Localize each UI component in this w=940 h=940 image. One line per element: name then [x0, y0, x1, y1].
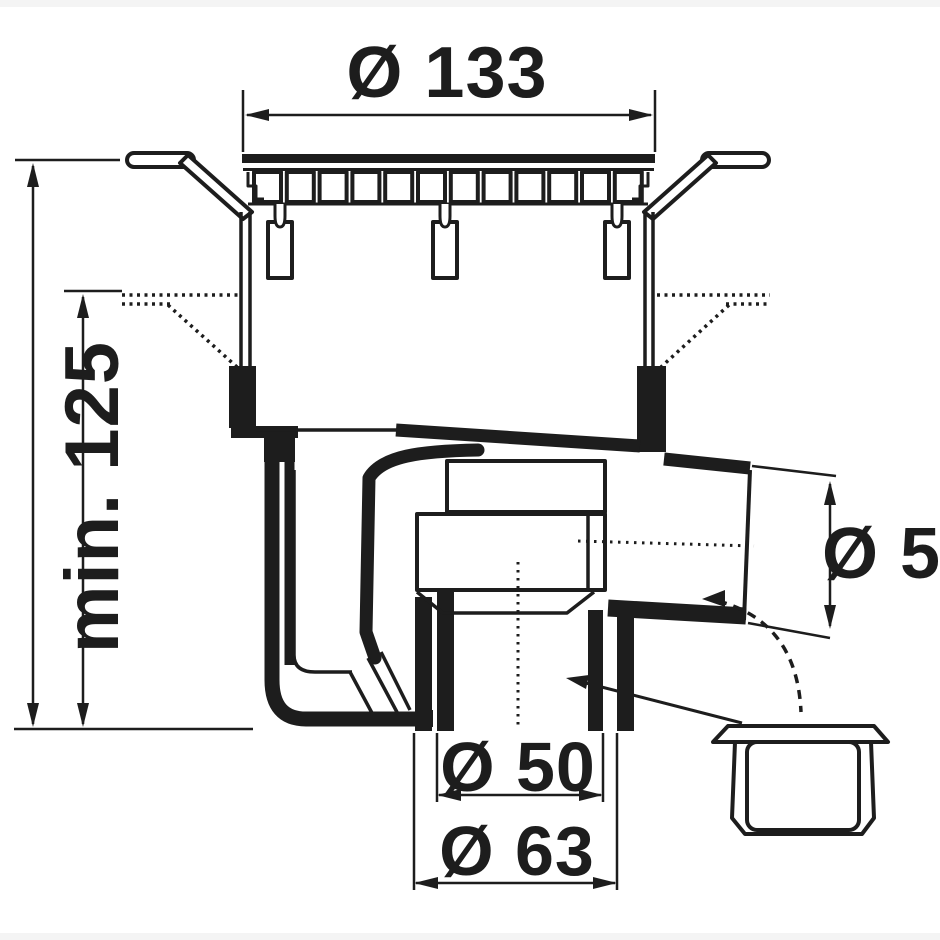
label-bottom-outlet-outer-diameter: Ø 63: [439, 812, 595, 890]
outlet-elbow-pipe: [417, 461, 605, 590]
side-outlet-bottom-wall: [608, 608, 746, 616]
membrane-flange-dotted: [122, 295, 770, 367]
floor-drain-cross-section: Ø 133 max. 175 min. 125 Ø 50 Ø 50 Ø 63: [0, 0, 940, 940]
arrowhead-icon: [27, 163, 39, 187]
arrowhead-icon: [824, 605, 836, 629]
arrowhead-icon: [593, 877, 617, 889]
label-grate-diameter: Ø 133: [346, 33, 547, 113]
outlet-pipe-hub: [447, 461, 605, 512]
arrowhead-icon: [77, 294, 89, 318]
side-outlet-top-wall: [664, 459, 750, 468]
label-side-outlet-diameter: Ø 50: [822, 514, 940, 594]
grate-leg: [433, 204, 457, 278]
grate-slots: [254, 172, 642, 202]
arrowhead-icon: [27, 703, 39, 727]
label-bottom-outlet-inner-diameter: Ø 50: [440, 728, 596, 806]
trap-insert-bottom: [294, 470, 352, 672]
arrowhead-icon: [245, 109, 269, 121]
arrowhead-icon: [566, 675, 589, 689]
plug-cavity: [747, 742, 859, 830]
arrowhead-icon: [77, 703, 89, 727]
arrowhead-icon: [824, 481, 836, 505]
outlet-pipe-body: [417, 514, 605, 590]
grate-leg: [268, 204, 292, 278]
plug-brim: [713, 726, 888, 742]
siphon-funnel-line: [368, 658, 398, 714]
grate-leg: [605, 204, 629, 278]
grate-legs: [268, 204, 629, 278]
cup-floor-slanted-band: [396, 430, 640, 446]
siphon-funnel-line: [381, 652, 410, 710]
outlet-plug: [713, 726, 888, 834]
arrowhead-icon: [702, 590, 725, 607]
arrowhead-icon: [414, 877, 438, 889]
technical-drawing-canvas: Ø 133 max. 175 min. 125 Ø 50 Ø 50 Ø 63: [0, 0, 940, 940]
grate-top-plate: [242, 154, 655, 163]
bottom-edge-strip: [0, 933, 940, 940]
label-height-max: max. 175: [0, 280, 15, 609]
clamping-flange-left: [127, 153, 252, 219]
clamping-flange-right: [644, 153, 769, 219]
grate: [242, 154, 655, 278]
top-edge-strip: [0, 0, 940, 7]
label-height-min: min. 125: [50, 341, 135, 653]
arrowhead-icon: [629, 109, 653, 121]
